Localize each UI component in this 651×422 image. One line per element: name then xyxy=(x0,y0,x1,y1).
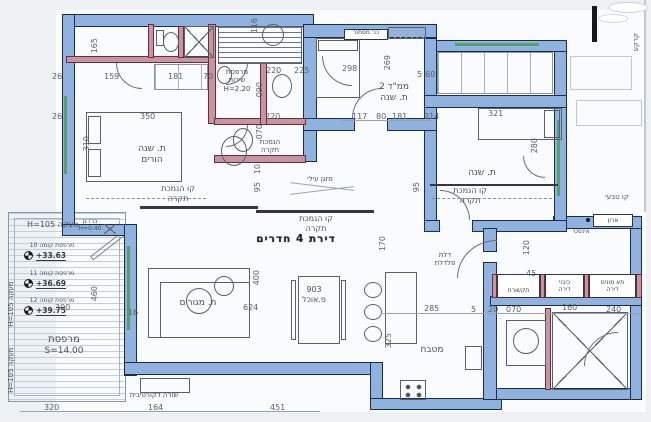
meters-closet: תא מונים דירה xyxy=(589,274,636,298)
steel-door-label: דלת פלדלת xyxy=(428,251,462,268)
room-label-service-balcony: מרפסת שירות H=2.20 xyxy=(216,68,258,93)
elevation-marker-icon xyxy=(24,251,33,260)
dim: 70 xyxy=(203,72,213,81)
dim: 5 xyxy=(417,70,422,79)
wall-segment xyxy=(424,40,567,52)
elevation-row-label: מרפסת קומה 11 xyxy=(24,270,80,277)
dim: 5 xyxy=(471,305,476,314)
elevation-value: +36.69 xyxy=(36,279,66,289)
dim: 181 xyxy=(392,112,407,121)
elevation-row-label: מרפסת קומה 10 xyxy=(24,242,80,249)
dim: 624 xyxy=(243,303,258,312)
dim: 45 xyxy=(526,269,536,278)
dim: 160 xyxy=(562,303,577,312)
elevation-row-label: מרפסת קומה 12 xyxy=(24,297,80,304)
ceiling-line-label: קו הנמכת תקרה xyxy=(444,186,496,205)
room-label-living: ת. מגורים xyxy=(172,298,224,309)
decorative-row-label: שורה דקורטיבית xyxy=(118,391,190,399)
dim: 164 xyxy=(148,403,163,412)
dim: 280 xyxy=(530,138,539,153)
dim: 220 xyxy=(266,66,281,75)
dim: 170 xyxy=(378,236,387,251)
ceiling-drop-line xyxy=(140,206,258,209)
chair xyxy=(364,304,382,320)
dining-bench xyxy=(341,280,346,340)
dim: 090 xyxy=(255,82,264,97)
ceiling-line-label: קו הנמכת תקרה xyxy=(290,214,342,233)
stair-treads xyxy=(218,26,302,64)
meter-divider xyxy=(636,274,642,298)
window xyxy=(64,96,67,174)
revision-cloud xyxy=(598,14,628,23)
room-label-parents-bedroom: ת. שנה הורים xyxy=(128,144,176,166)
toilet-bowl xyxy=(163,32,179,52)
dim: 26 xyxy=(52,72,62,81)
chair xyxy=(364,282,382,298)
dim: 16 xyxy=(128,308,138,317)
wall-segment xyxy=(424,220,440,232)
partition xyxy=(148,24,154,58)
ground-label: קרקע xyxy=(632,22,640,62)
railing-label-side: מעקה H=105 xyxy=(7,273,15,335)
section-bar xyxy=(592,6,597,42)
room-label-bedroom: ת. שנה xyxy=(458,168,506,179)
dim: 321 xyxy=(488,109,503,118)
chair xyxy=(364,326,382,342)
dim: 117 xyxy=(352,112,367,121)
room-label-kitchen: מטבח xyxy=(412,345,452,356)
dim: 60 xyxy=(425,70,435,79)
washing-machine-drum xyxy=(513,328,539,354)
dim: 80 xyxy=(376,112,386,121)
natural-line-label: קו טבעי xyxy=(594,193,640,201)
fire-closet: כיבוי דירה xyxy=(545,274,584,298)
pillow xyxy=(544,110,560,138)
dim: 070 xyxy=(506,305,521,314)
ceiling-drop-line xyxy=(256,210,374,213)
dim: 300 xyxy=(55,303,70,312)
room-label-dining: 903 פ.אוכל xyxy=(296,285,332,304)
wall-segment xyxy=(124,224,137,376)
laundry-screen-label: כנ' מסתור xyxy=(344,29,388,40)
stove xyxy=(400,380,426,400)
dim: 26 xyxy=(52,112,62,121)
dim: 95 xyxy=(253,182,262,192)
room-label-balcony: מרפסת S=14.00 xyxy=(36,334,92,357)
dim: 269 xyxy=(383,55,392,70)
dim: 350 xyxy=(140,112,155,121)
dim: 116 xyxy=(250,18,259,33)
toilet-bowl xyxy=(272,74,292,98)
dim: 325 xyxy=(384,333,393,348)
dim: 400 xyxy=(252,270,261,285)
dim: 10 xyxy=(253,164,262,174)
revision-cloud xyxy=(608,2,648,13)
railing-label-side: מעקה H=105 xyxy=(7,339,15,401)
neighbor-outline xyxy=(570,56,632,90)
neighbor-outline xyxy=(576,100,642,126)
dim: 181 xyxy=(168,72,183,81)
cabinet-dot xyxy=(586,218,590,222)
ceiling-line-label: קו הנמכת תקרה xyxy=(152,184,204,203)
mamad-window-hatch xyxy=(388,27,426,39)
ac-unit-label: מזגן עילי xyxy=(296,175,344,183)
dim: 20 xyxy=(488,305,498,314)
dim: 220 xyxy=(265,112,280,121)
boiler xyxy=(262,24,284,46)
wardrobe xyxy=(437,52,553,94)
wall-segment xyxy=(630,222,642,400)
wall-segment xyxy=(424,95,567,108)
room-label-mamad: ממ"ד 2 ת. שנה xyxy=(366,82,422,104)
dim: 165 xyxy=(90,38,99,53)
dim: 95 xyxy=(412,182,421,192)
dim: 451 xyxy=(270,403,285,412)
plot-line xyxy=(644,0,646,212)
apartment-title: דירת 4 חדרים xyxy=(254,233,338,246)
dim: 070 xyxy=(255,124,264,139)
dim: 214 xyxy=(424,112,439,121)
pillow xyxy=(318,40,358,51)
dim: 120 xyxy=(522,240,531,255)
plumbing-cabinet-label: ארון xyxy=(593,214,633,227)
dim: 240 xyxy=(606,305,621,314)
dim: 298 xyxy=(342,64,357,73)
elevation-marker-icon xyxy=(24,279,33,288)
dim: 285 xyxy=(424,304,439,313)
railing-label: מעקה H=105 xyxy=(22,220,84,230)
kitchen-sink xyxy=(465,346,482,370)
balcony-door-window xyxy=(127,246,130,330)
elevation-value: +33.63 xyxy=(36,251,66,261)
pillow xyxy=(88,149,101,177)
floor-plan: ת. שנה הורים מרפסת שירות H=2.20 ממ"ד 2 ת… xyxy=(0,0,651,422)
window xyxy=(455,43,539,46)
dim: 320 xyxy=(44,403,59,412)
dim: 460 xyxy=(90,286,99,301)
shower-stall xyxy=(184,26,214,58)
plumbing-cabinet-sub: אינסט' xyxy=(566,228,596,235)
dim: 159 xyxy=(104,72,119,81)
elevation-marker-icon xyxy=(24,306,33,315)
dim: 225 xyxy=(294,66,309,75)
wall-segment-mamad xyxy=(424,38,437,232)
garden-tap-mark xyxy=(104,224,116,234)
garden-tap-label: ברז גן H=0.40 xyxy=(76,218,104,232)
wall-segment xyxy=(124,362,376,375)
dim: 310 xyxy=(82,136,91,151)
coffee-table xyxy=(214,276,234,296)
ceiling-drop-label: הנמכת תקרה xyxy=(252,138,288,155)
wall-segment-mamad xyxy=(303,24,317,162)
